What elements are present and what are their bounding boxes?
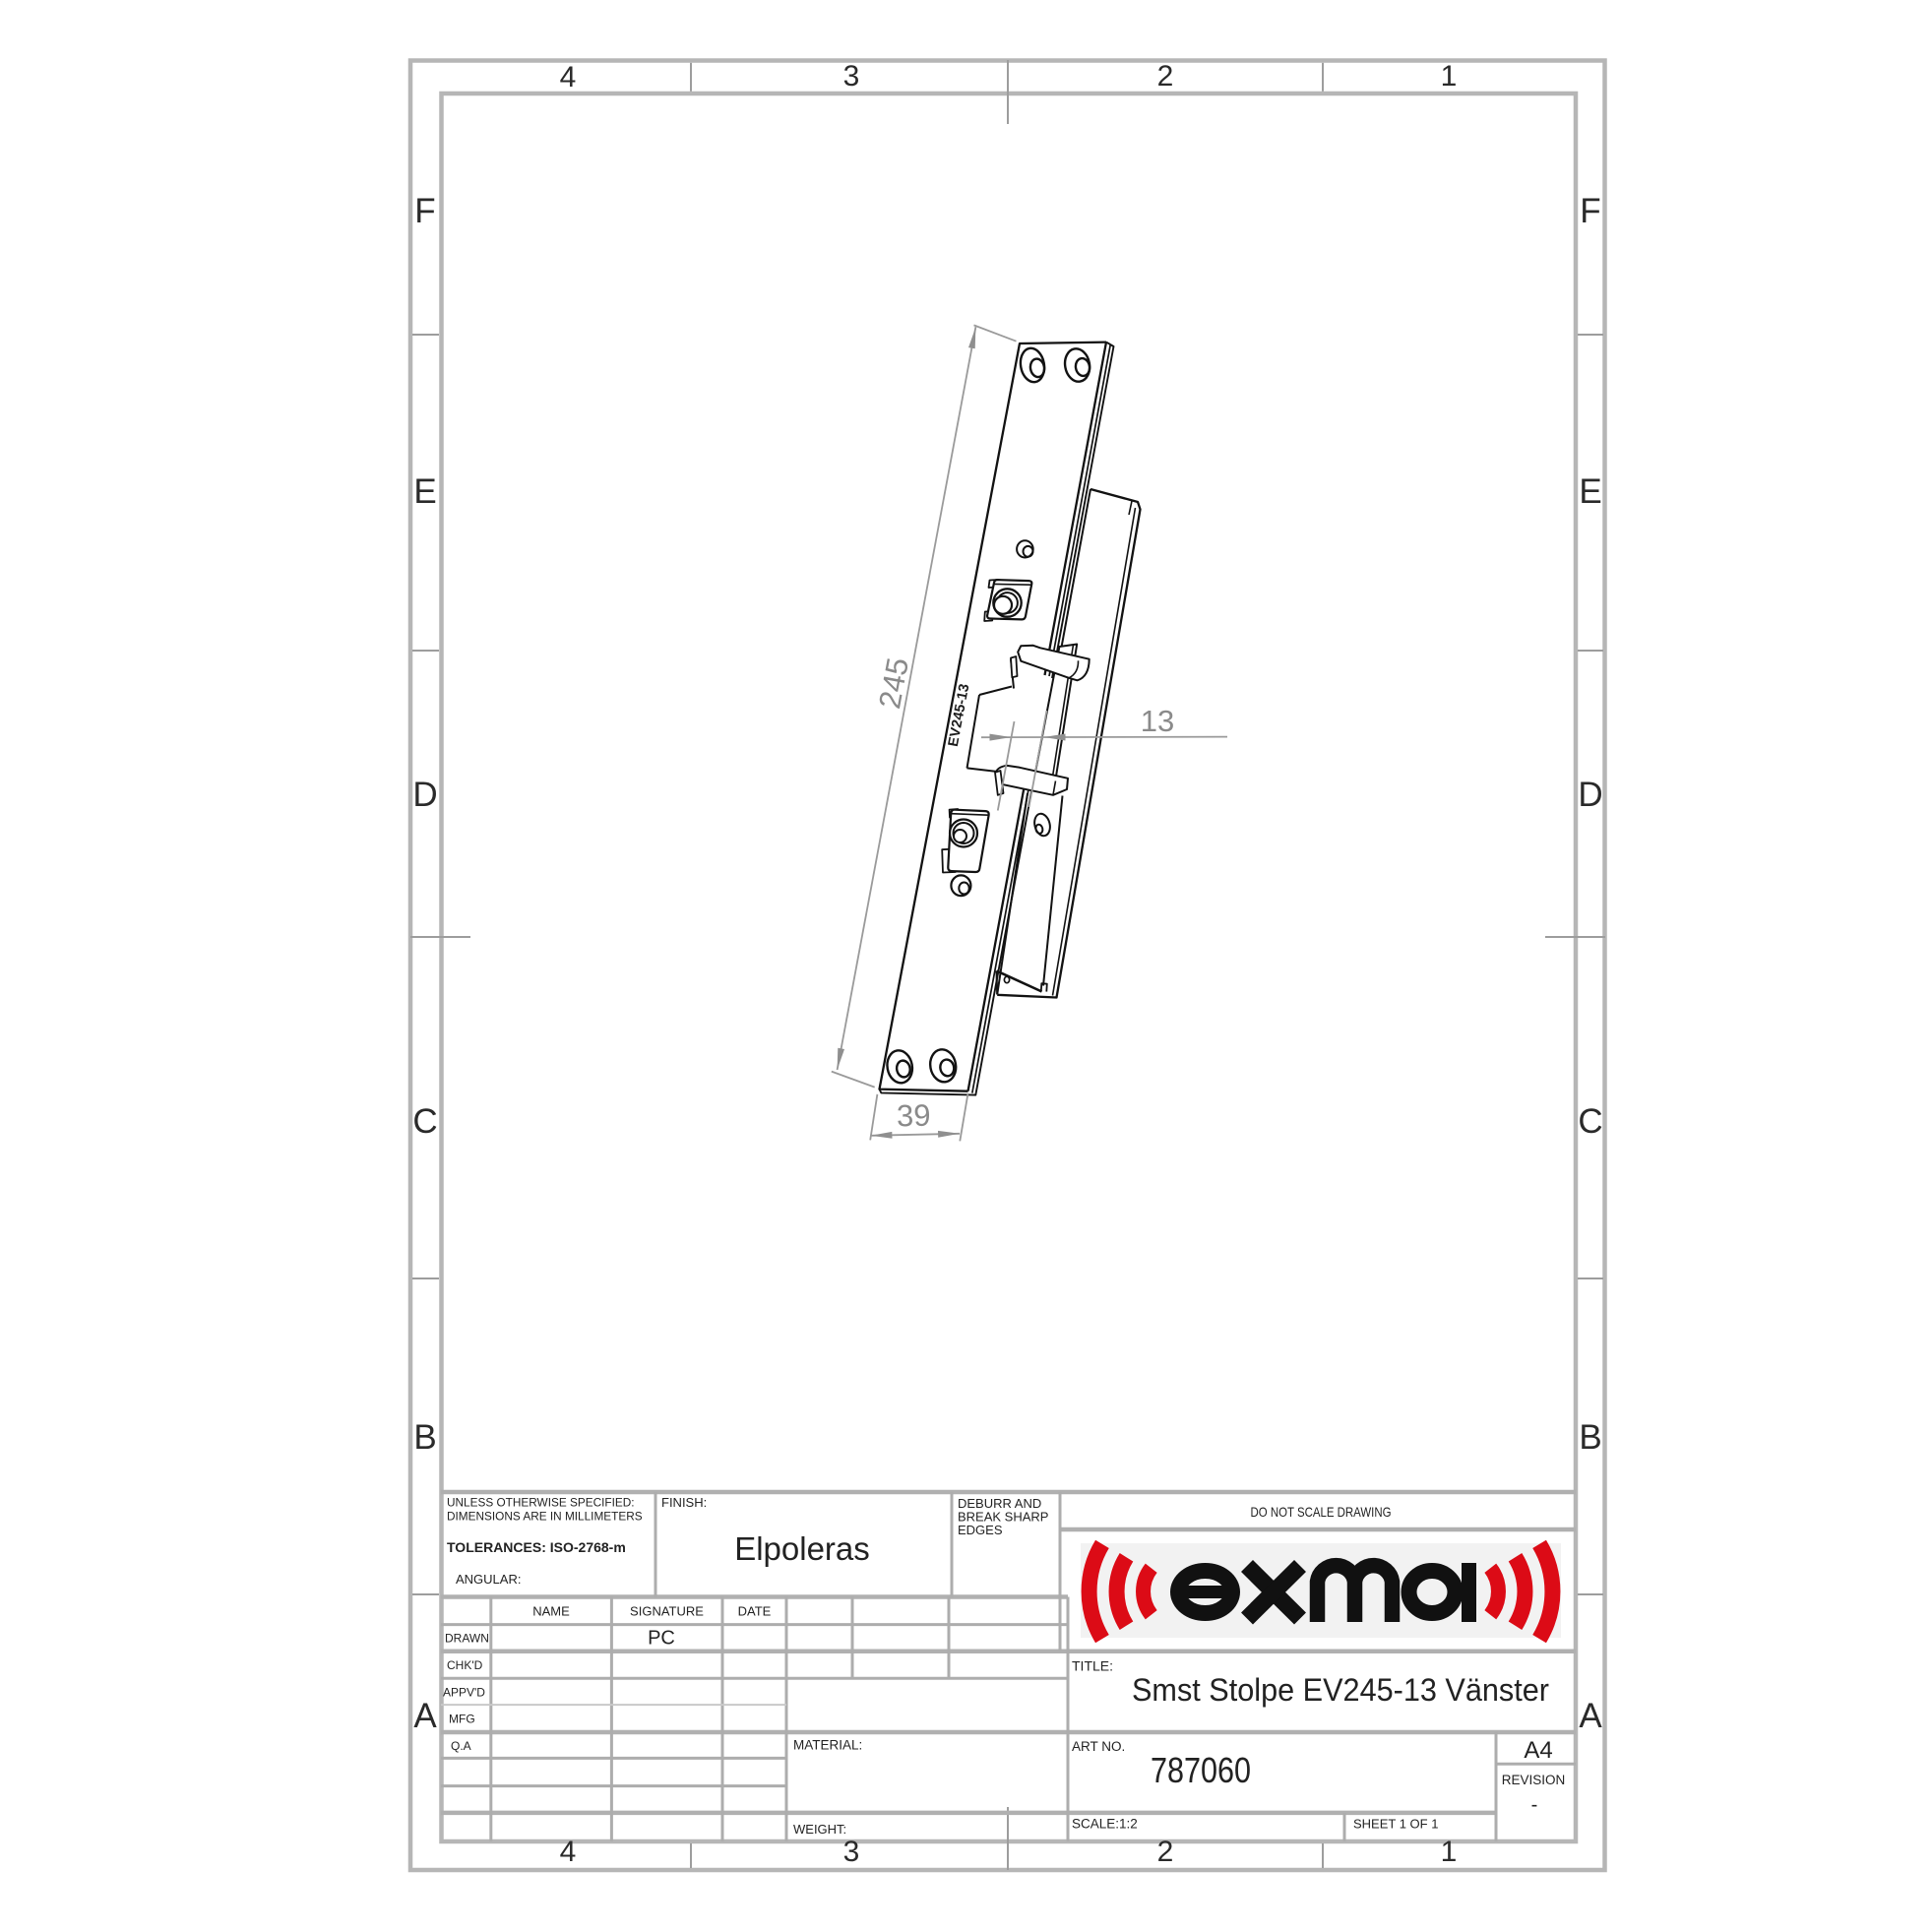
svg-text:4: 4 bbox=[560, 1836, 577, 1868]
svg-text:SHEET 1 OF 1: SHEET 1 OF 1 bbox=[1353, 1817, 1438, 1832]
svg-text:MATERIAL:: MATERIAL: bbox=[793, 1738, 862, 1753]
svg-text:APPV'D: APPV'D bbox=[443, 1685, 485, 1699]
svg-text:1: 1 bbox=[1441, 60, 1458, 93]
svg-text:A: A bbox=[413, 1697, 437, 1735]
svg-text:REVISION: REVISION bbox=[1502, 1773, 1566, 1787]
svg-text:F: F bbox=[1580, 192, 1600, 230]
svg-text:B: B bbox=[413, 1418, 436, 1457]
svg-text:Elpoleras: Elpoleras bbox=[734, 1530, 870, 1567]
svg-text:-: - bbox=[1531, 1794, 1538, 1816]
svg-text:DRAWN: DRAWN bbox=[445, 1632, 489, 1646]
svg-text:EDGES: EDGES bbox=[958, 1523, 1003, 1537]
svg-text:FINISH:: FINISH: bbox=[661, 1495, 707, 1510]
svg-text:E: E bbox=[1579, 472, 1601, 511]
svg-text:787060: 787060 bbox=[1151, 1750, 1251, 1790]
svg-text:4: 4 bbox=[560, 61, 577, 93]
svg-text:UNLESS OTHERWISE SPECIFIED:: UNLESS OTHERWISE SPECIFIED: bbox=[447, 1496, 635, 1510]
svg-text:DATE: DATE bbox=[738, 1604, 772, 1619]
svg-text:CHK'D: CHK'D bbox=[447, 1658, 483, 1672]
svg-text:Q.A: Q.A bbox=[451, 1739, 471, 1753]
svg-text:A: A bbox=[1579, 1697, 1602, 1735]
svg-text:1: 1 bbox=[1441, 1836, 1458, 1868]
svg-text:ANGULAR:: ANGULAR: bbox=[456, 1572, 521, 1587]
svg-text:E: E bbox=[413, 472, 436, 511]
svg-text:DO NOT SCALE DRAWING: DO NOT SCALE DRAWING bbox=[1251, 1504, 1392, 1520]
svg-text:SCALE:1:2: SCALE:1:2 bbox=[1072, 1817, 1138, 1832]
svg-text:B: B bbox=[1579, 1418, 1601, 1457]
svg-text:PC: PC bbox=[648, 1628, 675, 1650]
svg-text:C: C bbox=[412, 1102, 437, 1141]
svg-text:3: 3 bbox=[843, 1836, 860, 1868]
svg-text:2: 2 bbox=[1157, 1836, 1174, 1868]
svg-text:3: 3 bbox=[843, 60, 860, 93]
svg-text:2: 2 bbox=[1157, 60, 1174, 93]
svg-text:TOLERANCES: ISO-2768-m: TOLERANCES: ISO-2768-m bbox=[447, 1539, 626, 1555]
svg-text:C: C bbox=[1578, 1102, 1602, 1141]
svg-text:MFG: MFG bbox=[449, 1713, 475, 1726]
svg-text:ART NO.: ART NO. bbox=[1072, 1739, 1125, 1754]
svg-text:13: 13 bbox=[1141, 704, 1174, 738]
svg-text:DIMENSIONS ARE IN MILLIMETERS: DIMENSIONS ARE IN MILLIMETERS bbox=[447, 1510, 643, 1524]
svg-text:WEIGHT:: WEIGHT: bbox=[793, 1822, 846, 1837]
svg-text:D: D bbox=[1578, 776, 1602, 814]
svg-text:39: 39 bbox=[897, 1098, 931, 1134]
svg-text:Smst Stolpe EV245-13 Vänster: Smst Stolpe EV245-13 Vänster bbox=[1132, 1672, 1549, 1708]
svg-text:F: F bbox=[414, 192, 435, 230]
svg-text:SIGNATURE: SIGNATURE bbox=[630, 1604, 704, 1619]
svg-text:TITLE:: TITLE: bbox=[1072, 1658, 1113, 1674]
svg-text:D: D bbox=[412, 776, 437, 814]
svg-text:NAME: NAME bbox=[532, 1604, 570, 1619]
svg-text:A4: A4 bbox=[1524, 1737, 1552, 1764]
